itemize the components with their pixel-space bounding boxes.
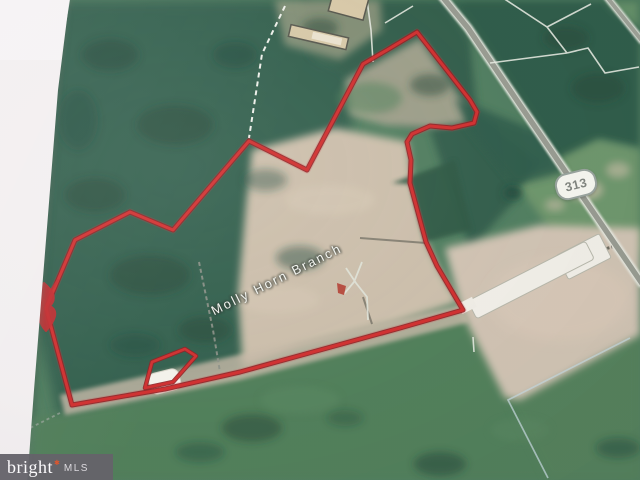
route-shield-number: 313 xyxy=(563,175,588,194)
map-viewport: Molly Horn Branch 313 bright ✱ MLS xyxy=(0,0,640,480)
satellite-map-image xyxy=(0,0,640,480)
watermark-mls-text: MLS xyxy=(64,463,89,474)
trademark-asterisk-icon: ✱ xyxy=(54,459,60,467)
terrain-layer xyxy=(28,0,640,480)
brightmls-watermark: bright ✱ MLS xyxy=(0,454,113,480)
watermark-brand-text: bright xyxy=(7,458,53,476)
